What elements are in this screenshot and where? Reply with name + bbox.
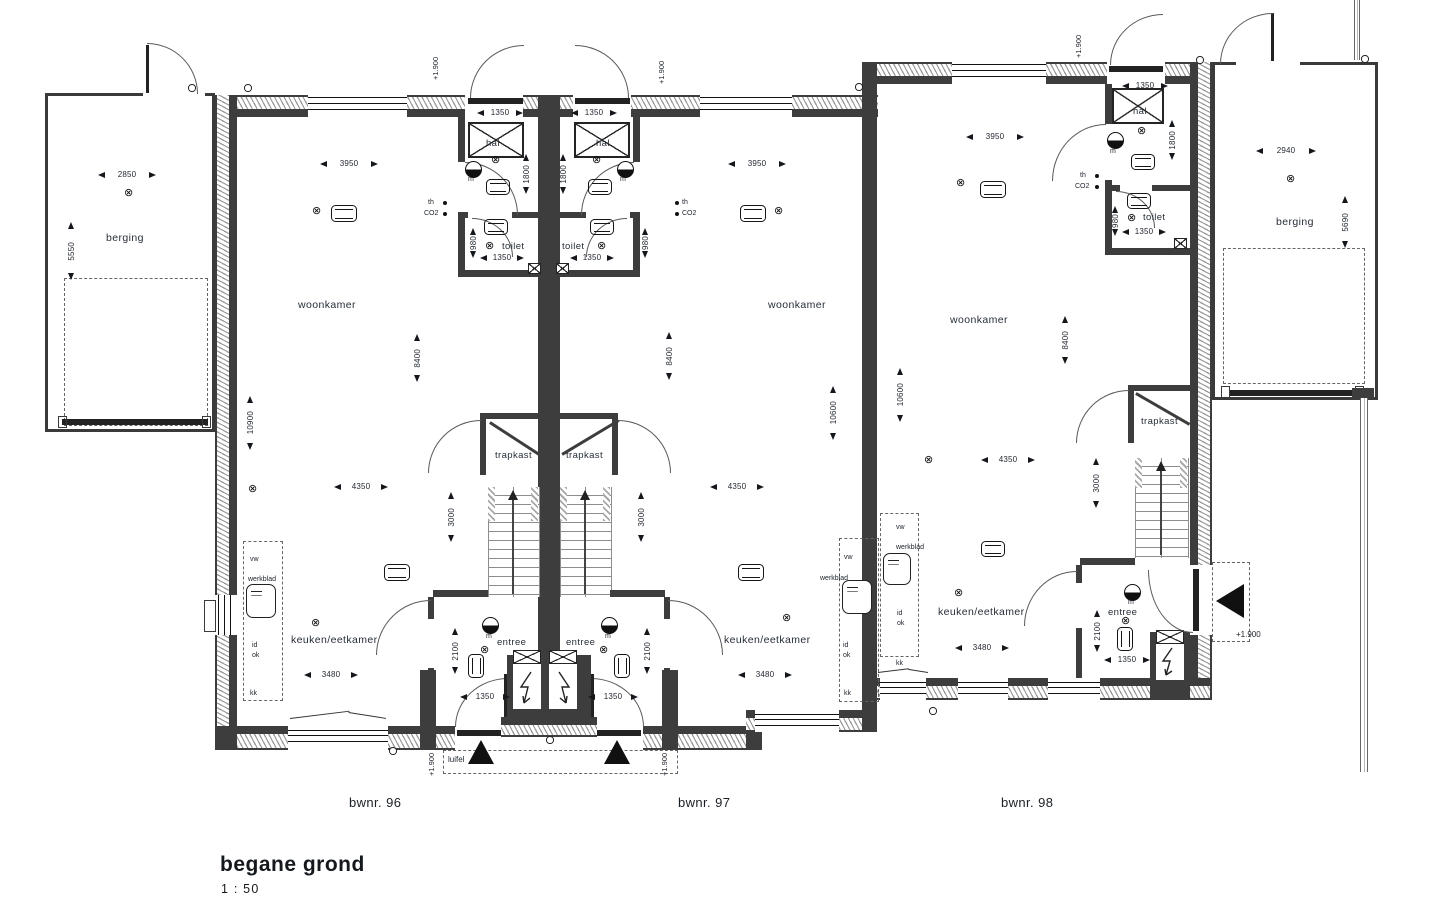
vent-label: m	[1128, 599, 1134, 606]
dim-toilet-depth-96: 980	[466, 228, 480, 258]
light-point-symbol: ⊗	[491, 155, 500, 166]
stair-walk-line	[512, 500, 514, 594]
dim-value: 2850	[118, 170, 137, 179]
plan-title: begane grond	[220, 853, 365, 877]
window-96-side	[218, 595, 231, 635]
kitchen-counter-98	[880, 513, 919, 657]
room-label-entree-97: entree	[566, 637, 595, 648]
drain-pipe-marker	[188, 84, 196, 92]
berging-wide-door	[62, 419, 208, 425]
thermostat-label: th	[682, 199, 688, 206]
dim-berging-left-width: 2850	[98, 170, 156, 179]
plan-scale: 1 : 50	[221, 882, 259, 896]
dim-woonkamer-width-96: 3950	[320, 159, 378, 168]
dim-keuken-width-98: 3480	[955, 643, 1009, 652]
dim-value: 1800	[1168, 131, 1177, 150]
level-label: +1.900	[431, 42, 440, 80]
sensor-dot	[443, 201, 447, 205]
window-98-rear	[952, 64, 1046, 77]
radiator-symbol	[590, 219, 614, 235]
sensor-dot	[443, 212, 447, 216]
window-96-rear	[308, 97, 407, 110]
dim-value: 2100	[643, 642, 652, 661]
dim-value: 3480	[756, 670, 775, 679]
dim-woonkamer-width-97: 3950	[728, 159, 786, 168]
dim-berging-left-depth: 5550	[64, 222, 78, 280]
meter-box-icon	[1156, 630, 1184, 644]
dim-woonkamer-depth-97: 8400	[662, 332, 676, 380]
wall-corner	[215, 726, 237, 750]
level-label: +1.900	[1236, 630, 1261, 639]
light-point-symbol: ⊗	[1286, 174, 1295, 185]
hal-wall	[458, 214, 465, 270]
door-swing-arc	[428, 420, 481, 473]
light-point-symbol: ⊗	[311, 618, 320, 629]
window-96-front	[288, 730, 388, 742]
sensor-dot	[1095, 174, 1099, 178]
meter-box-icon	[549, 650, 577, 664]
window-sill	[204, 600, 216, 632]
dim-value: 3950	[986, 132, 1005, 141]
dim-value: 4350	[999, 455, 1018, 464]
dim-unit-depth-97: 10600	[826, 386, 840, 440]
drain-pipe-marker	[855, 83, 863, 91]
window-98-front-3	[1048, 682, 1100, 694]
dim-woonkamer-width-98: 3950	[966, 132, 1024, 141]
fridge-label: kk	[844, 690, 851, 697]
sensor-dot	[675, 201, 679, 205]
light-point-symbol: ⊗	[597, 241, 606, 252]
hal-wall	[458, 117, 465, 162]
radiator-symbol	[384, 564, 410, 581]
dim-value: 3950	[340, 159, 359, 168]
dim-entree-depth-97: 2100	[640, 628, 654, 674]
radiator-symbol	[484, 219, 508, 235]
porch-wall	[501, 717, 597, 737]
dim-value: 2940	[1277, 146, 1296, 155]
electric-bolt-icon	[516, 670, 538, 706]
porch-pillar	[662, 670, 678, 748]
door-swing-arc	[1220, 13, 1273, 64]
electric-bolt-icon	[552, 670, 574, 706]
dim-value: 4350	[728, 482, 747, 491]
window-opening-direction-mark	[290, 710, 386, 724]
drain-pipe-marker	[546, 736, 554, 744]
door-leaf-97-rear	[575, 98, 630, 104]
berging-wide-door	[1229, 390, 1357, 396]
hal-toilet-partition	[1152, 185, 1190, 191]
light-point-symbol: ⊗	[956, 178, 965, 189]
dim-entree-depth-98: 2100	[1090, 610, 1104, 652]
dim-toilet-depth-97: 980	[638, 228, 652, 258]
dim-value: 8400	[413, 349, 422, 368]
dim-hal-width-97: 1350	[571, 108, 617, 117]
light-point-symbol: ⊗	[599, 645, 608, 656]
dim-value: 3000	[1092, 474, 1101, 493]
meter-box-icon	[513, 650, 541, 664]
dim-stairs-96: 3000	[444, 492, 458, 542]
toilet-wall	[1105, 248, 1190, 255]
room-label-keuken-98: keuken/eetkamer	[938, 606, 1025, 618]
radiator-symbol	[614, 654, 630, 678]
radiator-symbol	[588, 179, 612, 195]
stair-edge-hatch	[1135, 458, 1142, 488]
door-swing-arc	[1148, 570, 1193, 633]
stair-up-arrow	[1156, 461, 1166, 471]
fridge-label: kk	[250, 690, 257, 697]
unit-label-98: bwnr. 98	[1001, 795, 1053, 810]
dim-value: 2100	[451, 642, 460, 661]
drain-pipe-marker	[389, 747, 397, 755]
front-door-97	[593, 730, 641, 736]
door-leaf-98-rear	[1109, 66, 1163, 72]
entree-wall	[610, 590, 665, 597]
light-point-symbol: ⊗	[1137, 126, 1146, 137]
door-swing-arc	[591, 678, 644, 727]
radiator-symbol	[331, 205, 357, 222]
dim-value: 3480	[973, 643, 992, 652]
dishwasher-label: vw	[896, 524, 905, 531]
canopy-label: luifel	[448, 755, 464, 764]
vent-point-icon	[1107, 132, 1124, 149]
room-label-hal-98: hal	[1133, 106, 1147, 117]
light-point-symbol: ⊗	[248, 484, 257, 495]
dim-stairs-97: 3000	[634, 492, 648, 542]
door-post	[58, 416, 67, 428]
dim-value: 1800	[522, 165, 531, 184]
dim-value: 1350	[1136, 81, 1155, 90]
room-label-toilet-96: toilet	[502, 241, 524, 252]
front-door-96	[457, 730, 505, 736]
ok-label: ok	[843, 652, 850, 659]
door-swing-arc	[575, 45, 629, 98]
dim-value: 2100	[1093, 622, 1102, 641]
drain-pipe-marker	[929, 707, 937, 715]
stair-edge-hatch	[1180, 458, 1187, 488]
entree-wall	[1080, 558, 1135, 565]
dim-keuken-width-97: 3480	[738, 670, 792, 679]
drain-pipe-marker	[244, 84, 252, 92]
dim-hal-width-98: 1350	[1122, 81, 1168, 90]
parking-dashed-outline	[64, 278, 208, 426]
vent-box-icon	[556, 263, 569, 274]
unit-label-96: bwnr. 96	[349, 795, 401, 810]
level-label: +1.900	[657, 46, 666, 84]
room-label-entree-96: entree	[497, 637, 526, 648]
dim-value: 3000	[637, 508, 646, 527]
door-swing-arc	[1110, 14, 1163, 65]
id-label: id	[843, 642, 848, 649]
light-point-symbol: ⊗	[1127, 213, 1136, 224]
fence-line	[1354, 0, 1360, 60]
sensor-dot	[1095, 185, 1099, 189]
radiator-symbol	[981, 541, 1005, 557]
dim-unit-depth-96: 10900	[243, 396, 257, 450]
dim-value: 1350	[604, 692, 623, 701]
vent-box-icon	[528, 263, 541, 274]
room-label-trapkast-97: trapkast	[566, 450, 603, 461]
dim-value: 3950	[748, 159, 767, 168]
dim-value: 3480	[322, 670, 341, 679]
ok-label: ok	[897, 620, 904, 627]
sensor-dot	[675, 212, 679, 216]
door-post	[1221, 386, 1230, 399]
dim-toilet-width-96: 1350	[480, 253, 524, 262]
dim-value: 1350	[491, 108, 510, 117]
ok-label: ok	[252, 652, 259, 659]
radiator-symbol	[1117, 627, 1133, 651]
dim-value: 980	[469, 236, 478, 250]
vent-label: m	[468, 176, 474, 183]
dim-value: 5550	[67, 242, 76, 261]
dim-value: 1350	[585, 108, 604, 117]
dim-value: 1350	[493, 253, 512, 262]
drain-pipe-marker	[1361, 55, 1369, 63]
radiator-symbol	[468, 654, 484, 678]
kitchen-counter-97	[839, 538, 879, 702]
entrance-arrow-97	[604, 740, 630, 764]
vent-label: m	[486, 633, 492, 640]
parking-dashed-outline	[1223, 248, 1365, 384]
dim-entree-door-96: 1350	[460, 692, 510, 701]
light-point-symbol: ⊗	[924, 455, 933, 466]
dim-value: 8400	[1061, 331, 1070, 350]
thermostat-label: th	[428, 199, 434, 206]
dim-value: 1800	[559, 165, 568, 184]
dim-value: 1350	[583, 253, 602, 262]
id-label: id	[897, 610, 902, 617]
dim-value: 8400	[665, 347, 674, 366]
dim-value: 980	[1111, 214, 1120, 228]
porch-pillar	[420, 670, 436, 748]
id-label: id	[252, 642, 257, 649]
sink-icon	[883, 553, 911, 585]
trapkast-wall	[480, 413, 546, 419]
dim-value: 4350	[352, 482, 371, 491]
dishwasher-label: vw	[844, 554, 853, 561]
window-98-front-1	[880, 682, 926, 694]
dim-toilet-depth-98: 980	[1108, 206, 1122, 236]
door-post	[202, 416, 211, 428]
dim-woonkamer-depth-98: 8400	[1058, 316, 1072, 364]
hal-wall	[1105, 84, 1112, 124]
stair-edge-hatch	[560, 487, 567, 521]
stair-up-arrow	[508, 490, 518, 500]
stair-walk-line	[584, 500, 586, 594]
trapkast-wall	[1128, 385, 1190, 391]
vent-point-icon	[482, 617, 499, 634]
radiator-symbol	[740, 205, 766, 222]
co2-label: CO2	[1075, 183, 1089, 190]
dim-value: 1350	[1118, 655, 1137, 664]
dim-mid-width-98: 4350	[981, 455, 1035, 464]
door-swing-arc	[1052, 124, 1106, 181]
dim-hal-width-96: 1350	[477, 108, 523, 117]
dim-entree-depth-96: 2100	[448, 628, 462, 674]
sink-icon	[842, 580, 872, 614]
entrance-arrow-98	[1216, 584, 1244, 618]
dim-value: 10600	[896, 383, 905, 406]
room-label-berging-left: berging	[106, 232, 144, 244]
dim-berging-right-depth: 5690	[1338, 196, 1352, 248]
dim-keuken-width-96: 3480	[304, 670, 358, 679]
dim-berging-right-width: 2940	[1256, 146, 1316, 155]
door-swing-arc	[1024, 571, 1077, 626]
room-label-trapkast-96: trapkast	[495, 450, 532, 461]
room-label-toilet-97: toilet	[562, 241, 584, 252]
thermostat-label: th	[1080, 172, 1086, 179]
room-label-hal-97: hal	[596, 138, 610, 149]
room-label-woonkamer-97: woonkamer	[768, 299, 826, 311]
radiator-symbol	[486, 179, 510, 195]
entree-wall	[1076, 628, 1082, 678]
dim-mid-width-97: 4350	[710, 482, 764, 491]
dim-entree-door-98: 1350	[1104, 655, 1150, 664]
dim-hal-depth-98: 1800	[1165, 120, 1179, 160]
room-label-keuken-96: keuken/eetkamer	[291, 634, 378, 646]
light-point-symbol: ⊗	[782, 613, 791, 624]
stair-edge-hatch	[531, 487, 538, 521]
light-point-symbol: ⊗	[124, 188, 133, 199]
sink-icon	[246, 584, 276, 618]
window-98-front-2	[958, 682, 1008, 694]
window-97-front	[755, 714, 839, 726]
co2-label: CO2	[682, 210, 696, 217]
electric-bolt-icon	[1159, 646, 1179, 678]
fridge-label: kk	[896, 660, 903, 667]
dim-value: 980	[641, 236, 650, 250]
unit-label-97: bwnr. 97	[678, 795, 730, 810]
dim-mid-width-96: 4350	[334, 482, 388, 491]
drain-pipe-marker	[1196, 56, 1204, 64]
trapkast-wall	[552, 413, 618, 419]
entree-wall	[433, 590, 488, 597]
light-point-symbol: ⊗	[312, 206, 321, 217]
dim-value: 5690	[1341, 213, 1350, 232]
worktop-label: werkblad	[896, 544, 924, 551]
vent-point-icon	[601, 617, 618, 634]
room-label-woonkamer-98: woonkamer	[950, 314, 1008, 326]
dim-stairs-98: 3000	[1089, 458, 1103, 508]
vent-box-icon	[1174, 238, 1187, 249]
light-point-symbol: ⊗	[774, 206, 783, 217]
worktop-label: werkblad	[820, 575, 848, 582]
worktop-label: werkblad	[248, 576, 276, 583]
entrance-arrow-96	[468, 740, 494, 764]
room-label-woonkamer-96: woonkamer	[298, 299, 356, 311]
room-label-toilet-98: toilet	[1143, 212, 1165, 223]
window-97-rear	[700, 97, 792, 110]
room-label-berging-right: berging	[1276, 216, 1314, 228]
light-point-symbol: ⊗	[954, 588, 963, 599]
dim-toilet-width-98: 1350	[1122, 227, 1166, 236]
door-swing-arc	[618, 420, 671, 473]
dishwasher-label: vw	[250, 556, 259, 563]
hal-wall	[633, 117, 640, 162]
radiator-symbol	[738, 564, 764, 581]
kitchen-counter-96	[243, 541, 283, 701]
radiator-symbol	[1127, 193, 1151, 209]
front-door-98	[1193, 569, 1199, 631]
dim-value: 1350	[476, 692, 495, 701]
radiator-symbol	[1131, 154, 1155, 170]
radiator-symbol	[980, 181, 1006, 198]
stair-edge-hatch	[603, 487, 610, 521]
door-swing-arc	[668, 600, 723, 655]
window-opening-direction-mark	[878, 664, 928, 677]
stair-walk-line	[1160, 470, 1162, 555]
level-label: +1.900	[1074, 20, 1083, 58]
floor-plan-canvas: berging 2850 5550 ⊗ +1.900 +1.900 +1.900	[0, 0, 1432, 914]
stair-up-arrow	[580, 490, 590, 500]
stair-edge-hatch	[488, 487, 495, 521]
outer-wall-bottom-97	[643, 726, 746, 750]
fence-line	[1360, 398, 1368, 772]
dim-value: 10600	[829, 401, 838, 424]
room-label-hal-96: hal	[486, 138, 500, 149]
room-label-keuken-97: keuken/eetkamer	[724, 634, 811, 646]
door-swing-arc	[376, 600, 431, 655]
dim-value: 10900	[246, 411, 255, 434]
room-label-trapkast-98: trapkast	[1141, 416, 1178, 427]
door-leaf-96-rear	[468, 98, 523, 104]
dim-hal-depth-97: 1800	[556, 154, 570, 194]
dim-woonkamer-depth-96: 8400	[410, 334, 424, 382]
light-point-symbol: ⊗	[1121, 616, 1130, 627]
vent-label: m	[620, 176, 626, 183]
dim-entree-door-97: 1350	[588, 692, 638, 701]
light-point-symbol: ⊗	[592, 155, 601, 166]
dim-value: 1350	[1135, 227, 1154, 236]
door-swing-arc	[470, 45, 524, 98]
dim-hal-depth-96: 1800	[519, 154, 533, 194]
light-point-symbol: ⊗	[485, 241, 494, 252]
co2-label: CO2	[424, 210, 438, 217]
vent-label: m	[1110, 148, 1116, 155]
dim-toilet-width-97: 1350	[570, 253, 614, 262]
door-swing-arc	[1076, 390, 1129, 443]
dim-unit-depth-98: 10600	[893, 368, 907, 422]
dim-value: 3000	[447, 508, 456, 527]
vent-label: m	[605, 633, 611, 640]
